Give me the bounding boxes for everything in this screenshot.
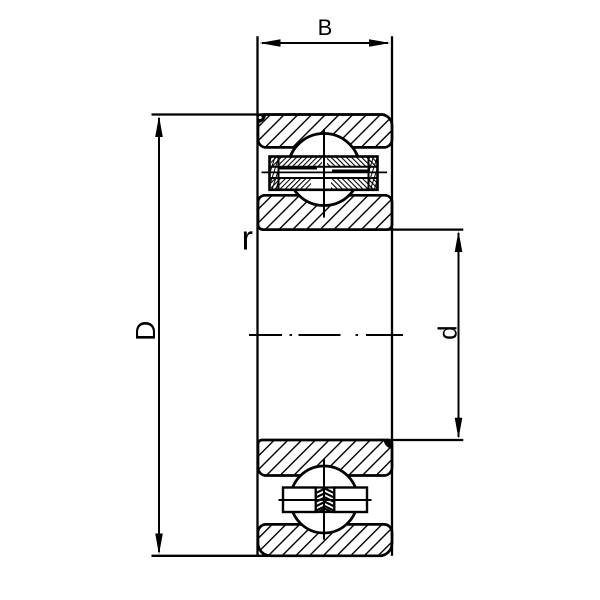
svg-text:d: d: [433, 325, 463, 339]
svg-text:D: D: [130, 321, 161, 341]
svg-text:r: r: [242, 219, 253, 257]
svg-text:B: B: [318, 15, 333, 40]
